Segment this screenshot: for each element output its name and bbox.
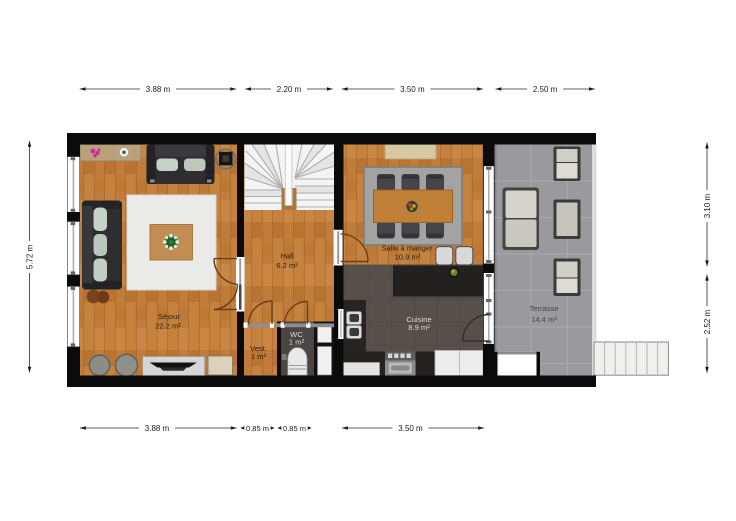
svg-text:3.50 m: 3.50 m [400, 85, 425, 94]
svg-text:14.4 m²: 14.4 m² [531, 315, 557, 324]
svg-text:6.2 m²: 6.2 m² [276, 261, 298, 270]
svg-text:Terrasse: Terrasse [529, 304, 558, 313]
svg-text:0.85 m: 0.85 m [283, 424, 306, 433]
svg-text:2.50 m: 2.50 m [533, 85, 558, 94]
svg-text:5.72 m: 5.72 m [25, 244, 34, 269]
svg-text:2.20 m: 2.20 m [277, 85, 302, 94]
svg-text:3.10 m: 3.10 m [703, 193, 712, 218]
svg-text:Hall: Hall [280, 252, 293, 261]
svg-text:22.2 m²: 22.2 m² [155, 322, 181, 331]
svg-text:Salle à manger: Salle à manger [381, 244, 433, 253]
svg-text:10.9 m²: 10.9 m² [395, 253, 421, 262]
svg-text:2.52 m: 2.52 m [703, 309, 712, 334]
svg-text:3.88 m: 3.88 m [145, 424, 170, 433]
svg-text:1 m²: 1 m² [251, 352, 267, 361]
svg-text:Séjour: Séjour [158, 312, 180, 321]
svg-text:1 m²: 1 m² [289, 338, 305, 347]
svg-text:3.88 m: 3.88 m [146, 85, 171, 94]
svg-text:3.50 m: 3.50 m [398, 424, 423, 433]
svg-text:0.85 m: 0.85 m [246, 424, 269, 433]
svg-text:8.9 m²: 8.9 m² [408, 323, 430, 332]
